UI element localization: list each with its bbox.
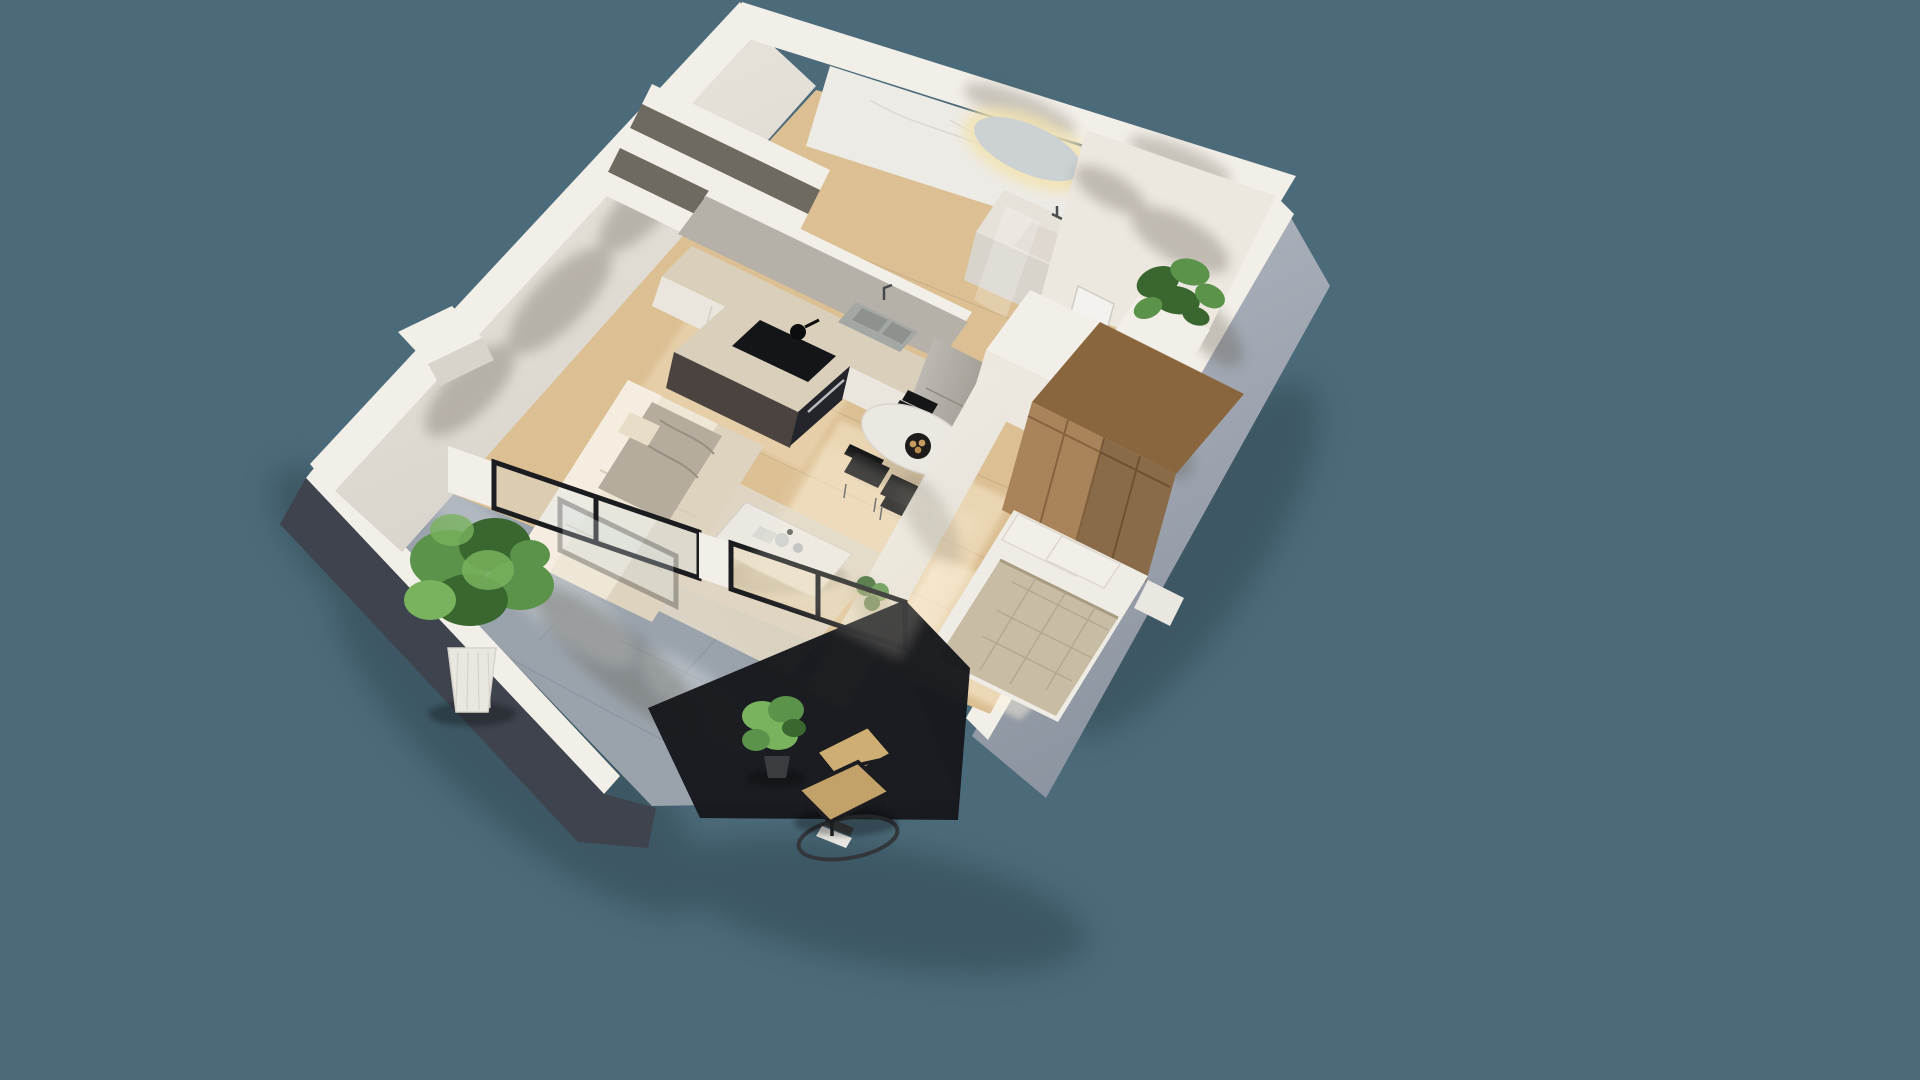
fruit: [915, 447, 922, 454]
render-canvas: [0, 0, 1920, 1080]
fruit: [919, 440, 926, 447]
small-plant-pot: [764, 756, 790, 778]
pot-on-cooktop: [790, 324, 806, 340]
apartment-3d-floorplan: 3D isometric cutaway render of a one-bed…: [0, 0, 1920, 1080]
fruit: [910, 441, 917, 448]
fruit-bowl: [905, 433, 931, 459]
